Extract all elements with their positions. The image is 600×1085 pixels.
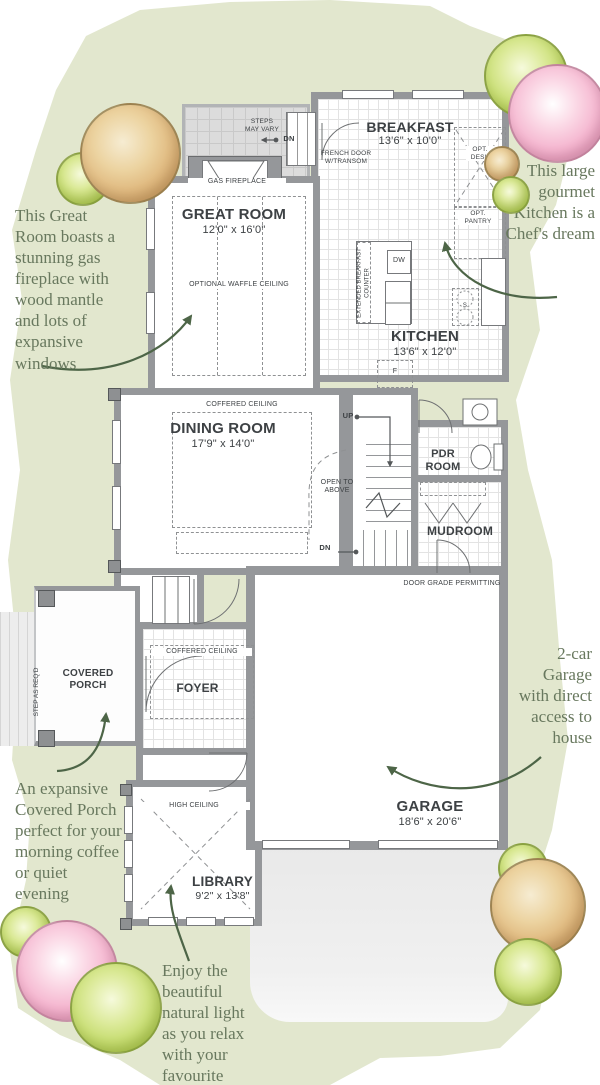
floor-plan-canvas: BREAKFAST 13'6" x 10'0" GREAT ROOM 12'0"… <box>0 0 600 1085</box>
arrow-porch <box>57 714 106 771</box>
arrow-garage <box>388 757 541 788</box>
label-up: UP <box>338 412 358 421</box>
annotation-library: Enjoy the beautiful natural light as you… <box>162 960 260 1085</box>
label-great-room-dims: 12'0" x 16'0" <box>155 224 313 237</box>
shrub <box>494 938 562 1006</box>
label-high-ceiling: HIGH CEILING <box>138 802 250 810</box>
label-waffle-ceiling: OPTIONAL WAFFLE CEILING <box>175 281 303 289</box>
label-kitchen-dims: 13'6" x 12'0" <box>345 346 505 359</box>
label-garage: GARAGE <box>365 798 495 816</box>
label-kitchen: KITCHEN <box>345 328 505 346</box>
label-covered-porch: COVERED PORCH <box>52 668 124 692</box>
label-fridge: F <box>383 368 407 376</box>
label-foyer: FOYER <box>160 681 235 695</box>
tree <box>70 962 162 1054</box>
label-pdr: PDR ROOM <box>420 448 466 474</box>
tree <box>80 103 181 204</box>
tree <box>508 64 600 163</box>
label-library-dims: 9'2" x 13'8" <box>180 890 265 902</box>
label-gas-fireplace: GAS FIREPLACE <box>188 178 286 186</box>
label-dn-upper: DN <box>278 135 300 144</box>
label-step-as-reqd: STEP AS REQ'D <box>30 648 44 736</box>
arrow-kitchen <box>445 243 557 298</box>
dashed-lines <box>141 130 504 909</box>
label-steps-may-vary: STEPS MAY VARY <box>244 118 280 133</box>
label-dn-lower: DN <box>314 544 336 553</box>
shrub <box>492 176 530 214</box>
label-library: LIBRARY <box>180 874 265 890</box>
label-breakfast: BREAKFAST <box>330 119 490 136</box>
label-coffered-foyer: COFFERED CEILING <box>152 648 252 656</box>
label-dining: DINING ROOM <box>128 420 318 438</box>
annotation-porch: An expansive Covered Porch perfect for y… <box>15 778 123 904</box>
label-dining-dims: 17'9" x 14'0" <box>128 438 318 451</box>
annotation-garage: 2-car Garage with direct access to house <box>512 643 592 748</box>
label-french-door: FRENCH DOOR W/TRANSOM <box>318 150 374 165</box>
label-great-room: GREAT ROOM <box>155 206 313 224</box>
label-garage-dims: 18'6" x 20'6" <box>365 816 495 829</box>
label-sink: S <box>460 303 470 310</box>
label-door-grade: DOOR GRADE PERMITTING <box>400 580 504 588</box>
label-extended-breakfast-counter: EXTENDED BREAKFAST COUNTER <box>357 241 373 326</box>
label-open-to-above: OPEN TO ABOVE <box>312 479 362 496</box>
label-opt-pantry: OPT. PANTRY <box>458 210 498 225</box>
bath-fixtures <box>463 399 503 470</box>
annotation-great-room: This Great Room boasts a stunning gas fi… <box>15 205 123 374</box>
label-mudroom: MUDROOM <box>415 524 505 538</box>
label-dishwasher: DW <box>386 257 412 265</box>
label-coffered-dining: COFFERED CEILING <box>178 401 306 409</box>
